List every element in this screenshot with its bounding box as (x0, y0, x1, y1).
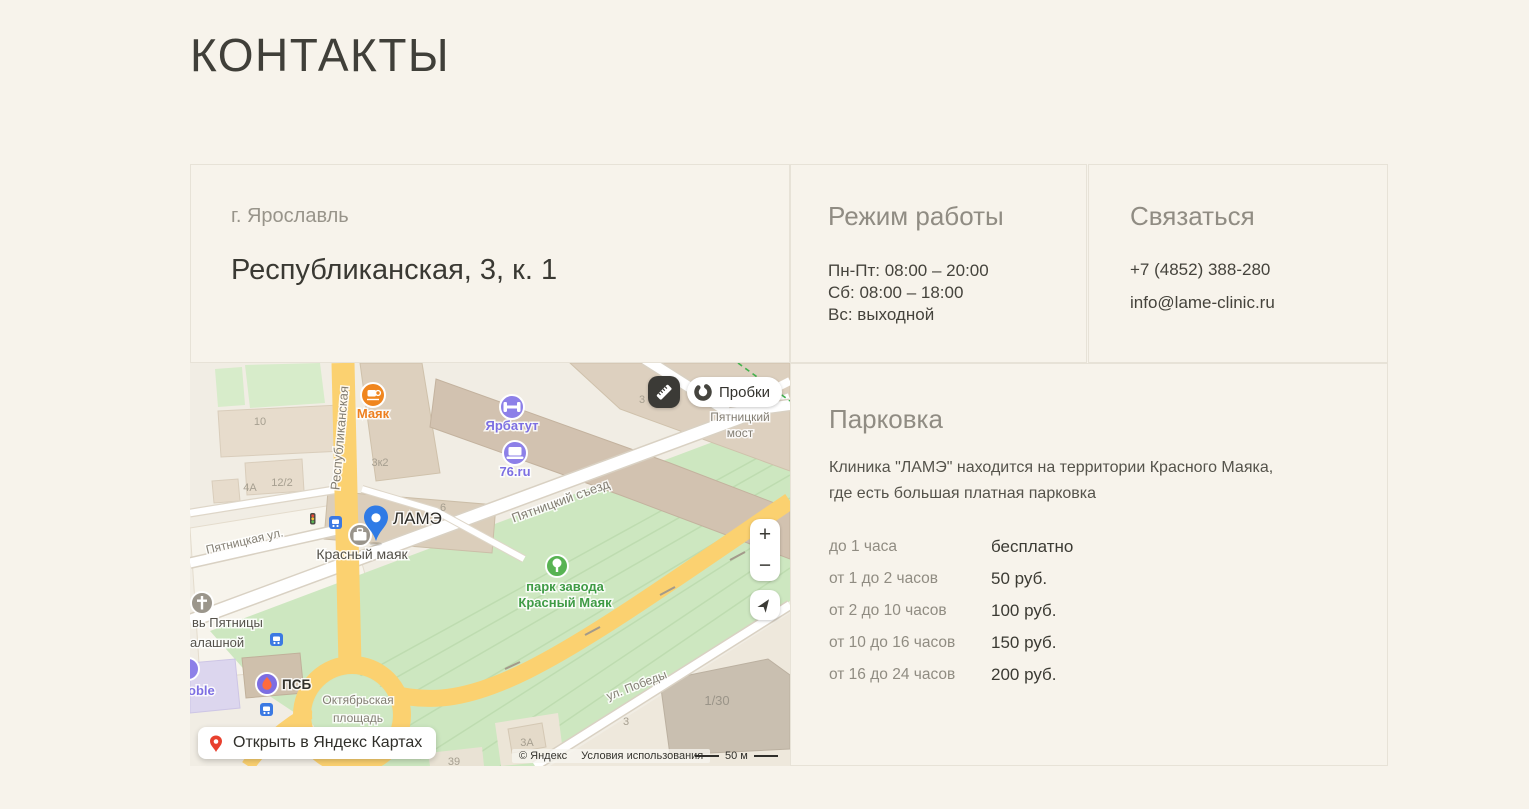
terms-of-use-link[interactable]: Условия использования (581, 750, 703, 762)
svg-text:oble: oble (190, 683, 215, 698)
svg-text:10: 10 (254, 416, 266, 428)
page-title: КОНТАКТЫ (190, 28, 450, 82)
rate-duration: от 10 до 16 часов (829, 634, 991, 652)
map-canvas: Республиканская Пятницкая ул. Пятницкий … (190, 363, 790, 766)
rate-row: от 10 до 16 часов 150 руб. (829, 627, 1357, 659)
working-hours-heading: Режим работы (828, 201, 1056, 232)
hours-saturday: Сб: 08:00 – 18:00 (828, 282, 1056, 304)
scale-value: 50 м (725, 750, 748, 762)
parking-rates-table: до 1 часа бесплатно от 1 до 2 часов 50 р… (829, 531, 1357, 691)
contact-card: Связаться +7 (4852) 388-280 info@lame-cl… (1088, 164, 1388, 363)
contact-heading: Связаться (1130, 201, 1357, 232)
yandex-maps-pin-icon (207, 734, 225, 752)
traffic-toggle-label: Пробки (719, 384, 770, 401)
contacts-grid: г. Ярославль Республиканская, 3, к. 1 Ре… (190, 164, 1388, 766)
email-link[interactable]: info@lame-clinic.ru (1130, 293, 1357, 313)
rate-price: 100 руб. (991, 601, 1057, 621)
svg-text:ПСБ: ПСБ (282, 677, 311, 692)
poi-76ru[interactable]: 76.ru (499, 441, 530, 479)
zoom-in-button[interactable]: + (750, 519, 780, 550)
svg-text:12/2: 12/2 (271, 477, 292, 489)
open-in-yandex-maps-label: Открыть в Яндекс Картах (233, 734, 422, 752)
rate-duration: до 1 часа (829, 538, 991, 556)
scale-line-left (695, 755, 719, 757)
svg-text:Ярбатут: Ярбатут (486, 418, 539, 433)
svg-text:вь Пятницы: вь Пятницы (192, 615, 263, 630)
map-attribution: © Яндекс Условия использования (512, 749, 710, 763)
lame-pin-label: ЛАМЭ (393, 509, 442, 528)
rate-duration: от 16 до 24 часов (829, 666, 991, 684)
hours-weekdays: Пн-Пт: 08:00 – 20:00 (828, 260, 1056, 282)
geolocation-button[interactable] (750, 590, 780, 620)
svg-text:1/30: 1/30 (704, 693, 729, 708)
parking-card: Парковка Клиника "ЛАМЭ" находится на тер… (790, 363, 1388, 766)
traffic-ring-icon (693, 382, 713, 402)
hours-sunday: Вс: выходной (828, 304, 1056, 326)
svg-text:Красный маяк: Красный маяк (316, 546, 408, 562)
phone-link[interactable]: +7 (4852) 388-280 (1130, 260, 1357, 280)
svg-text:Пятницкий: Пятницкий (710, 410, 769, 424)
svg-text:3: 3 (639, 394, 645, 406)
parking-description: Клиника "ЛАМЭ" находится на территории К… (829, 455, 1299, 507)
map-parks-small (215, 363, 325, 408)
rate-row: от 2 до 10 часов 100 руб. (829, 595, 1357, 627)
address-card: г. Ярославль Республиканская, 3, к. 1 (190, 164, 790, 363)
rate-row: от 16 до 24 часов 200 руб. (829, 659, 1357, 691)
ruler-button[interactable] (648, 376, 680, 408)
geolocation-arrow-icon (757, 597, 773, 613)
ruler-icon (654, 382, 674, 402)
svg-text:Маяк: Маяк (357, 406, 390, 421)
poi-psb-bank[interactable]: ПСБ (256, 673, 311, 695)
working-hours-list: Пн-Пт: 08:00 – 20:00 Сб: 08:00 – 18:00 В… (828, 260, 1056, 326)
address-city: г. Ярославль (231, 205, 749, 228)
zoom-control: + − (750, 519, 780, 581)
svg-text:3к2: 3к2 (371, 457, 388, 469)
zoom-out-button[interactable]: − (750, 550, 780, 581)
address-street: Республиканская, 3, к. 1 (231, 254, 749, 287)
scale-line-right (754, 755, 778, 757)
svg-text:Красный Маяк: Красный Маяк (518, 595, 612, 610)
svg-text:39: 39 (448, 756, 460, 766)
svg-text:Октябрьская: Октябрьская (322, 693, 393, 707)
yandex-copyright-link[interactable]: © Яндекс (519, 750, 567, 762)
working-hours-card: Режим работы Пн-Пт: 08:00 – 20:00 Сб: 08… (790, 164, 1087, 363)
svg-text:парк завода: парк завода (526, 579, 605, 594)
rate-row: от 1 до 2 часов 50 руб. (829, 563, 1357, 595)
rate-price: 50 руб. (991, 569, 1047, 589)
svg-text:3: 3 (623, 716, 629, 728)
rate-row: до 1 часа бесплатно (829, 531, 1357, 563)
svg-text:алашной: алашной (190, 635, 244, 650)
svg-text:76.ru: 76.ru (499, 464, 530, 479)
rate-duration: от 2 до 10 часов (829, 602, 991, 620)
rate-duration: от 1 до 2 часов (829, 570, 991, 588)
traffic-toggle-button[interactable]: Пробки (687, 377, 782, 407)
contacts-page: КОНТАКТЫ г. Ярославль Республиканская, 3… (0, 0, 1529, 809)
traffic-light-icon (310, 513, 316, 525)
parking-heading: Парковка (829, 404, 1357, 435)
svg-text:площадь: площадь (333, 711, 383, 725)
rate-price: бесплатно (991, 537, 1073, 557)
map-scale: 50 м (695, 750, 778, 762)
svg-text:4А: 4А (243, 482, 257, 494)
svg-text:3А: 3А (520, 737, 534, 749)
rate-price: 150 руб. (991, 633, 1057, 653)
svg-text:мост: мост (727, 426, 754, 440)
yandex-map[interactable]: Республиканская Пятницкая ул. Пятницкий … (190, 363, 790, 766)
rate-price: 200 руб. (991, 665, 1057, 685)
open-in-yandex-maps-button[interactable]: Открыть в Яндекс Картах (198, 727, 436, 759)
